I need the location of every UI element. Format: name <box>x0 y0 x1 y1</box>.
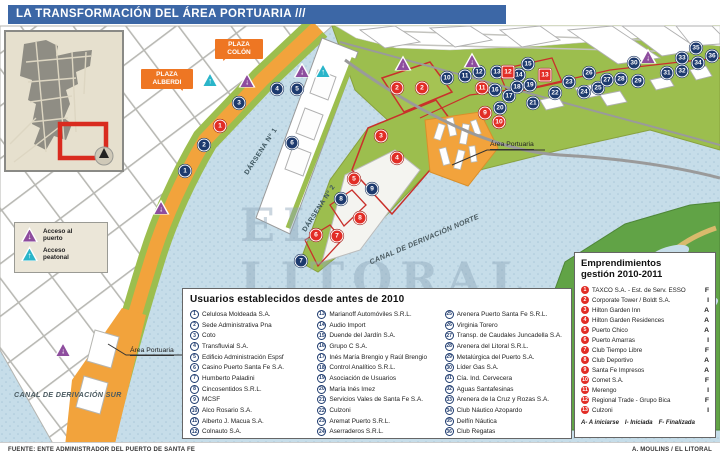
access-legend-box: ↓ Acceso al puerto ↑ Acceso peatonal <box>14 222 108 273</box>
map-marker-emprendimiento-12: 12 <box>502 66 515 79</box>
map-marker-emprendimiento-6: 6 <box>310 229 323 242</box>
map-marker-emprendimiento-2: 2 <box>416 82 429 95</box>
usuario-number-badge: 10 <box>190 406 199 415</box>
usuarios-column: 25Arenera Puerto Santa Fe S.R.L.26Virgin… <box>445 309 564 437</box>
usuario-list-item: 33Arenera de la Cruz y Rozas S.A. <box>445 395 564 406</box>
usuario-number-badge: 9 <box>190 395 199 404</box>
usuario-list-item: 12Colnauto S.A. <box>190 427 309 438</box>
usuario-number-badge: 31 <box>445 374 454 383</box>
emprendimiento-status: A <box>701 327 709 334</box>
emprendimiento-number-badge: 12 <box>581 396 589 404</box>
usuario-name: Arenera del Litoral S.R.L. <box>457 343 529 350</box>
emprendimiento-number-badge: 2 <box>581 296 589 304</box>
status-legend-entry: A- A iniciarse <box>581 420 619 426</box>
emprendimiento-number-badge: 7 <box>581 346 589 354</box>
usuario-name: Aguas Santafesinas <box>457 386 514 393</box>
usuario-list-item: 25Arenera Puerto Santa Fe S.R.L. <box>445 309 564 320</box>
usuario-list-item: 16Grupo C S.A. <box>317 341 436 352</box>
emprendimiento-status: A <box>701 307 709 314</box>
map-marker-emprendimiento-2: 2 <box>391 82 404 95</box>
map-marker-emprendimiento-1: 1 <box>214 120 227 133</box>
usuario-number-badge: 28 <box>445 342 454 351</box>
usuario-number-badge: 35 <box>445 417 454 426</box>
map-marker-usuario-35: 35 <box>690 42 703 55</box>
infographic-root: EL LITORAL LA TRANSFORMACIÓN DEL ÁREA PO… <box>0 0 720 456</box>
usuario-name: Grupo C S.A. <box>329 343 367 350</box>
usuario-name: Metalúrgica del Puerto S.A. <box>457 354 535 361</box>
emprendimiento-list-item: 9Santa Fe ImpresosA <box>581 365 709 375</box>
map-marker-emprendimiento-13: 13 <box>539 69 552 82</box>
port-access-triangle-icon: ↓ <box>21 227 38 242</box>
usuario-number-badge: 20 <box>317 385 326 394</box>
emprendimiento-number-badge: 8 <box>581 356 589 364</box>
emprendimiento-list-item: 3Hilton Garden InnA <box>581 305 709 315</box>
usuario-number-badge: 14 <box>317 321 326 330</box>
emprendimiento-list-item: 5Puerto ChicoA <box>581 325 709 335</box>
emprendimiento-number-badge: 11 <box>581 386 589 394</box>
status-legend-entry: F- Finalizada <box>659 420 695 426</box>
emprendimiento-name: Hilton Garden Residences <box>592 317 698 324</box>
map-marker-emprendimiento-3: 3 <box>375 130 388 143</box>
emprendimiento-number-badge: 10 <box>581 376 589 384</box>
emprendimiento-status: I <box>701 337 709 344</box>
usuario-number-badge: 15 <box>317 331 326 340</box>
map-marker-usuario-29: 29 <box>632 75 645 88</box>
emprendimiento-name: Santa Fe Impresos <box>592 367 698 374</box>
usuario-name: Sede Administrativa Pna <box>202 322 272 329</box>
map-marker-usuario-3: 3 <box>233 97 246 110</box>
usuario-name: Colnauto S.A. <box>202 428 241 435</box>
usuario-list-item: 36Club Regatas <box>445 427 564 438</box>
emprendimiento-list-item: 8Club DeportivoA <box>581 355 709 365</box>
emprendimiento-name: Club Deportivo <box>592 357 698 364</box>
pedestrian-access-label: Acceso peatonal <box>43 247 91 261</box>
usuario-name: Cía. Ind. Cervecera <box>457 375 512 382</box>
usuario-list-item: 31Cía. Ind. Cervecera <box>445 373 564 384</box>
usuarios-columns: 1Celulosa Moldeada S.A.2Sede Administrat… <box>190 309 564 437</box>
usuario-name: Control Analítico S.R.L. <box>329 364 395 371</box>
emprendimiento-status: I <box>701 407 709 414</box>
usuario-name: Delfín Náutica <box>457 418 497 425</box>
usuario-list-item: 2Sede Administrativa Pna <box>190 320 309 331</box>
emprendimiento-list-item: 2Corporate Tower / Boldt S.A.I <box>581 295 709 305</box>
usuario-number-badge: 24 <box>317 427 326 436</box>
usuario-number-badge: 7 <box>190 374 199 383</box>
emprendimiento-number-badge: 3 <box>581 306 589 314</box>
usuario-name: Arenera de la Cruz y Rozas S.A. <box>457 396 549 403</box>
usuario-list-item: 11Alberto J. Macua S.A. <box>190 416 309 427</box>
map-marker-usuario-20: 20 <box>494 102 507 115</box>
usuario-name: Humberto Paladini <box>202 375 255 382</box>
map-marker-usuario-24: 24 <box>578 86 591 99</box>
usuarios-panel-title: Usuarios establecidos desde antes de 201… <box>190 294 564 305</box>
usuario-list-item: 32Aguas Santafesinas <box>445 384 564 395</box>
emprendimiento-status: F <box>701 287 709 294</box>
map-marker-usuario-11: 11 <box>459 70 472 83</box>
canal-derivacion-sur-label: CANAL DE DERIVACIÓN SUR <box>14 390 122 399</box>
emprendimiento-list-item: 11MerengoI <box>581 385 709 395</box>
emprendimientos-panel: Emprendimientos gestión 2010-2011 1TAXCO… <box>574 252 716 438</box>
usuario-list-item: 15Duende del Jardín S.A. <box>317 330 436 341</box>
emprendimiento-list-item: 12Regional Trade - Grupo BicaF <box>581 395 709 405</box>
usuario-name: Alberto J. Macua S.A. <box>202 418 264 425</box>
usuario-name: Inés María Brengio y Raúl Brengio <box>329 354 427 361</box>
footer-bar: FUENTE: ENTE ADMINISTRADOR DEL PUERTO DE… <box>0 442 720 456</box>
usuario-list-item: 22Culzoni <box>317 405 436 416</box>
emprendimientos-rows: 1TAXCO S.A. - Est. de Serv. ESSOF2Corpor… <box>581 285 709 415</box>
usuario-list-item: 7Humberto Paladini <box>190 373 309 384</box>
emprendimiento-number-badge: 13 <box>581 406 589 414</box>
usuario-number-badge: 22 <box>317 406 326 415</box>
usuario-number-badge: 5 <box>190 353 199 362</box>
emprendimiento-name: Club Tiempo Libre <box>592 347 698 354</box>
usuario-number-badge: 16 <box>317 342 326 351</box>
usuario-number-badge: 25 <box>445 310 454 319</box>
emprendimiento-status: A <box>701 357 709 364</box>
usuario-list-item: 3Coto <box>190 330 309 341</box>
emprendimiento-number-badge: 1 <box>581 286 589 294</box>
area-portuaria-label-right: Área Portuaria <box>490 141 534 150</box>
emprendimiento-name: Corporate Tower / Boldt S.A. <box>592 297 698 304</box>
status-legend-entry: I- Iniciada <box>625 420 653 426</box>
usuario-list-item: 8Cincosentidos S.R.L. <box>190 384 309 395</box>
usuario-list-item: 1Celulosa Moldeada S.A. <box>190 309 309 320</box>
emprendimiento-name: Merengo <box>592 387 698 394</box>
map-marker-usuario-21: 21 <box>527 97 540 110</box>
infographic-title: LA TRANSFORMACIÓN DEL ÁREA PORTUARIA /// <box>8 5 506 24</box>
usuario-list-item: 27Transp. de Caudales Juncadella S.A. <box>445 330 564 341</box>
usuario-list-item: 4Transfluvial S.A. <box>190 341 309 352</box>
emprendimiento-number-badge: 5 <box>581 326 589 334</box>
usuario-list-item: 34Club Náutico Azopardo <box>445 405 564 416</box>
usuario-number-badge: 29 <box>445 353 454 362</box>
usuario-name: Duende del Jardín S.A. <box>329 332 395 339</box>
usuario-number-badge: 21 <box>317 395 326 404</box>
legend-row-port-access: ↓ Acceso al puerto <box>21 227 101 242</box>
emprendimiento-name: Regional Trade - Grupo Bica <box>592 397 698 404</box>
usuario-list-item: 28Arenera del Litoral S.R.L. <box>445 341 564 352</box>
map-marker-usuario-36: 36 <box>706 50 719 63</box>
emprendimiento-number-badge: 4 <box>581 316 589 324</box>
city-inset-map <box>4 30 124 172</box>
usuario-list-item: 21Servicios Vales de Santa Fe S.A. <box>317 395 436 406</box>
usuario-number-badge: 12 <box>190 427 199 436</box>
emprendimiento-status: A <box>701 367 709 374</box>
map-marker-usuario-9: 9 <box>366 183 379 196</box>
map-marker-usuario-33: 33 <box>676 52 689 65</box>
usuario-number-badge: 13 <box>317 310 326 319</box>
usuario-list-item: 26Virginia Torero <box>445 320 564 331</box>
emprendimiento-status: I <box>701 297 709 304</box>
usuario-number-badge: 6 <box>190 363 199 372</box>
usuarios-column: 1Celulosa Moldeada S.A.2Sede Administrat… <box>190 309 309 437</box>
map-marker-usuario-27: 27 <box>601 74 614 87</box>
usuario-name: Casino Puerto Santa Fe S.A. <box>202 364 284 371</box>
usuarios-column: 13Marianoff Automóviles S.R.L.14Audio Im… <box>317 309 436 437</box>
usuario-list-item: 24Aserraderos S.R.L. <box>317 427 436 438</box>
emprendimiento-status: I <box>701 387 709 394</box>
usuario-name: Culzoni <box>329 407 350 414</box>
usuario-name: Cincosentidos S.R.L. <box>202 386 262 393</box>
map-marker-usuario-19: 19 <box>524 79 537 92</box>
author-credit: A. MOULINS / EL LITORAL <box>632 447 712 453</box>
usuario-list-item: 29Metalúrgica del Puerto S.A. <box>445 352 564 363</box>
usuario-number-badge: 18 <box>317 363 326 372</box>
usuario-number-badge: 27 <box>445 331 454 340</box>
map-marker-emprendimiento-7: 7 <box>331 230 344 243</box>
plaza-colon-callout: PLAZA COLÓN <box>215 39 263 59</box>
map-marker-usuario-18: 18 <box>511 81 524 94</box>
usuario-list-item: 35Delfín Náutica <box>445 416 564 427</box>
map-marker-usuario-23: 23 <box>563 76 576 89</box>
usuario-name: Líder Gas S.A. <box>457 364 499 371</box>
usuario-name: María Inés Imez <box>329 386 375 393</box>
usuario-name: Audio Import <box>329 322 365 329</box>
map-marker-usuario-15: 15 <box>522 58 535 71</box>
usuario-list-item: 23Aremat Puerto S.R.L. <box>317 416 436 427</box>
usuario-number-badge: 32 <box>445 385 454 394</box>
emprendimiento-status: F <box>701 347 709 354</box>
usuario-number-badge: 4 <box>190 342 199 351</box>
usuario-number-badge: 26 <box>445 321 454 330</box>
map-marker-usuario-7: 7 <box>295 255 308 268</box>
usuario-name: Servicios Vales de Santa Fe S.A. <box>329 396 423 403</box>
map-marker-usuario-22: 22 <box>549 87 562 100</box>
usuario-list-item: 30Líder Gas S.A. <box>445 362 564 373</box>
usuario-number-badge: 23 <box>317 417 326 426</box>
emprendimiento-status: A <box>701 317 709 324</box>
map-marker-usuario-31: 31 <box>661 67 674 80</box>
usuario-number-badge: 2 <box>190 321 199 330</box>
emprendimiento-status: F <box>701 397 709 404</box>
emprendimiento-name: Puerto Chico <box>592 327 698 334</box>
usuario-name: Club Náutico Azopardo <box>457 407 522 414</box>
map-marker-usuario-2: 2 <box>198 139 211 152</box>
usuario-number-badge: 8 <box>190 385 199 394</box>
usuario-name: MCSF <box>202 396 220 403</box>
inset-map-graphic <box>6 32 122 170</box>
usuario-name: Aremat Puerto S.R.L. <box>329 418 390 425</box>
legend-row-pedestrian-access: ↑ Acceso peatonal <box>21 246 101 261</box>
usuario-list-item: 13Marianoff Automóviles S.R.L. <box>317 309 436 320</box>
usuario-name: Coto <box>202 332 216 339</box>
usuario-list-item: 9MCSF <box>190 395 309 406</box>
emprendimiento-list-item: 6Puerto AmarrasI <box>581 335 709 345</box>
map-marker-usuario-4: 4 <box>271 83 284 96</box>
usuario-number-badge: 33 <box>445 395 454 404</box>
usuario-list-item: 14Audio Import <box>317 320 436 331</box>
emprendimiento-status: F <box>701 377 709 384</box>
usuario-number-badge: 30 <box>445 363 454 372</box>
usuario-name: Virginia Torero <box>457 322 498 329</box>
usuario-number-badge: 1 <box>190 310 199 319</box>
map-marker-usuario-5: 5 <box>291 83 304 96</box>
emprendimiento-name: TAXCO S.A. - Est. de Serv. ESSO <box>592 287 698 294</box>
usuario-number-badge: 34 <box>445 406 454 415</box>
map-marker-usuario-32: 32 <box>676 65 689 78</box>
map-marker-emprendimiento-5: 5 <box>348 173 361 186</box>
usuario-list-item: 10Alco Rosario S.A. <box>190 405 309 416</box>
pedestrian-access-triangle-icon: ↑ <box>21 246 38 261</box>
usuarios-panel: Usuarios establecidos desde antes de 201… <box>182 288 572 439</box>
usuario-number-badge: 3 <box>190 331 199 340</box>
usuario-name: Marianoff Automóviles S.R.L. <box>329 311 411 318</box>
emprendimiento-list-item: 10Comet S.A.F <box>581 375 709 385</box>
emprendimiento-name: Culzoni <box>592 407 698 414</box>
usuario-number-badge: 11 <box>190 417 199 426</box>
map-marker-usuario-34: 34 <box>692 57 705 70</box>
emprendimiento-list-item: 4Hilton Garden ResidencesA <box>581 315 709 325</box>
emprendimiento-list-item: 13CulzoniI <box>581 405 709 415</box>
map-marker-usuario-1: 1 <box>179 165 192 178</box>
usuario-name: Club Regatas <box>457 428 496 435</box>
map-marker-usuario-28: 28 <box>615 73 628 86</box>
usuario-number-badge: 17 <box>317 353 326 362</box>
emprendimiento-list-item: 1TAXCO S.A. - Est. de Serv. ESSOF <box>581 285 709 295</box>
usuario-list-item: 17Inés María Brengio y Raúl Brengio <box>317 352 436 363</box>
map-marker-usuario-26: 26 <box>583 67 596 80</box>
emprendimiento-name: Hilton Garden Inn <box>592 307 698 314</box>
map-marker-emprendimiento-8: 8 <box>354 212 367 225</box>
usuario-name: Edificio Administración Espsf <box>202 354 284 361</box>
usuario-list-item: 18Control Analítico S.R.L. <box>317 362 436 373</box>
emprendimiento-name: Comet S.A. <box>592 377 698 384</box>
usuario-list-item: 19Asociación de Usuarios <box>317 373 436 384</box>
map-marker-usuario-6: 6 <box>286 137 299 150</box>
emprendimiento-number-badge: 6 <box>581 336 589 344</box>
source-credit: FUENTE: ENTE ADMINISTRADOR DEL PUERTO DE… <box>8 447 195 453</box>
area-portuaria-label-left: Área Portuaria <box>130 347 174 356</box>
usuario-list-item: 20María Inés Imez <box>317 384 436 395</box>
usuario-name: Asociación de Usuarios <box>329 375 396 382</box>
map-marker-usuario-10: 10 <box>441 72 454 85</box>
emprendimientos-panel-title: Emprendimientos gestión 2010-2011 <box>581 259 671 280</box>
emprendimiento-number-badge: 9 <box>581 366 589 374</box>
usuario-list-item: 5Edificio Administración Espsf <box>190 352 309 363</box>
usuario-number-badge: 36 <box>445 427 454 436</box>
usuario-name: Transfluvial S.A. <box>202 343 248 350</box>
map-marker-emprendimiento-10: 10 <box>493 116 506 129</box>
usuario-list-item: 6Casino Puerto Santa Fe S.A. <box>190 362 309 373</box>
map-marker-emprendimiento-11: 11 <box>476 82 489 95</box>
emprendimiento-name: Puerto Amarras <box>592 337 698 344</box>
plaza-alberdi-callout: PLAZA ALBERDI <box>141 69 193 89</box>
map-marker-emprendimiento-9: 9 <box>479 107 492 120</box>
map-marker-usuario-30: 30 <box>628 57 641 70</box>
status-legend: A- A iniciarseI- IniciadaF- Finalizada <box>581 420 709 426</box>
port-access-label: Acceso al puerto <box>43 228 91 242</box>
map-marker-usuario-8: 8 <box>335 193 348 206</box>
usuario-name: Aserraderos S.R.L. <box>329 428 383 435</box>
map-marker-usuario-16: 16 <box>489 84 502 97</box>
usuario-name: Celulosa Moldeada S.A. <box>202 311 271 318</box>
usuario-name: Alco Rosario S.A. <box>202 407 252 414</box>
map-marker-emprendimiento-4: 4 <box>391 152 404 165</box>
usuario-number-badge: 19 <box>317 374 326 383</box>
usuario-name: Arenera Puerto Santa Fe S.R.L. <box>457 311 548 318</box>
emprendimiento-list-item: 7Club Tiempo LibreF <box>581 345 709 355</box>
usuario-name: Transp. de Caudales Juncadella S.A. <box>457 332 562 339</box>
